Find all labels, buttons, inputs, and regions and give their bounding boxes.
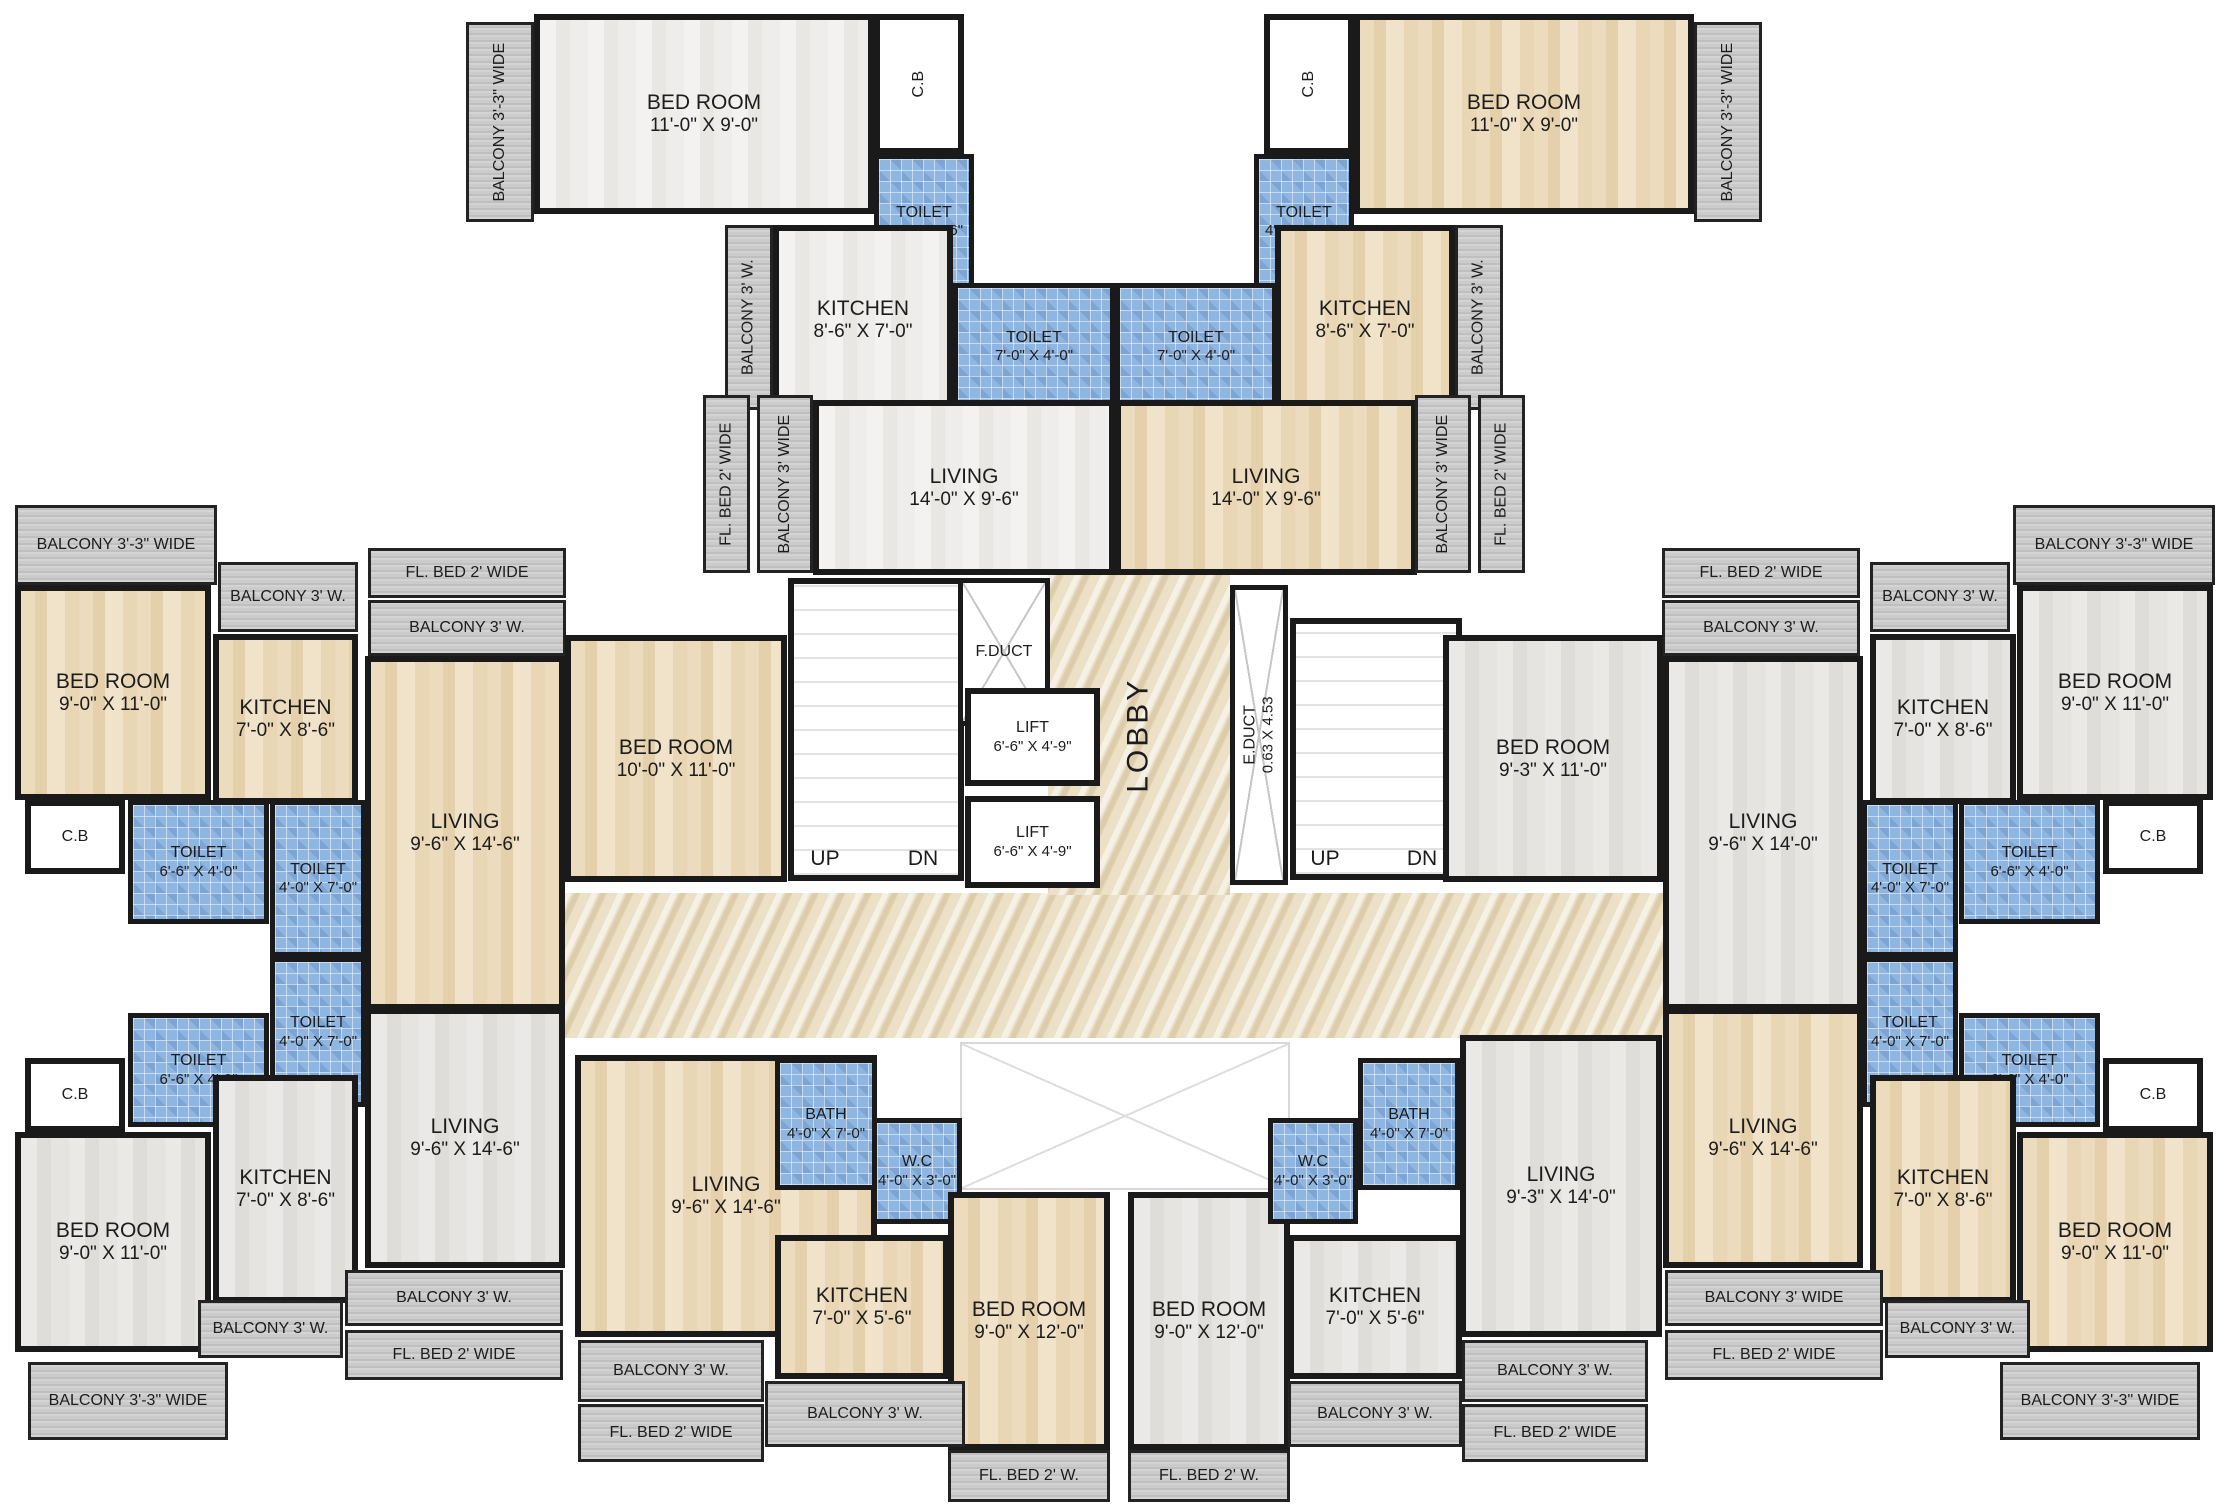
- balcony-3w-left-top-name-text: BALCONY 3' W.: [230, 588, 346, 606]
- kitchen-bot-left-label: KITCHEN7'-0" X 5'-6": [813, 1284, 912, 1330]
- bath-bot-right-name-text: BATH: [1370, 1106, 1448, 1124]
- living-bot-left-label: LIVING9'-6" X 14'-6": [671, 1173, 780, 1219]
- bedroom-left-top-label: BED ROOM9'-0" X 11'-0": [56, 670, 170, 716]
- floor-plan: LOBBYF.DUCTE.DUCT0.63 X 4.53LIFT6'-6" X …: [0, 0, 2229, 1509]
- balcony-33-top-right-name-text: BALCONY 3'-3" WIDE: [1719, 43, 1737, 202]
- bedroom-93-right-mid-label: BED ROOM9'-3" X 11'-0": [1496, 736, 1610, 782]
- cb-top-left-label: C.B: [910, 71, 928, 98]
- balcony-3w-left-bot-2-label: BALCONY 3' W.: [213, 1320, 329, 1338]
- cb-top-right: C.B: [1264, 14, 1354, 154]
- toilet-74-top-right-dims-text: 7'-0" X 4'-0": [1157, 347, 1235, 364]
- stairs-up-right-label: UP: [1310, 847, 1339, 871]
- toilet-66-right-top: TOILET6'-6" X 4'-0": [1959, 800, 2100, 924]
- kitchen-top-left-dims-text: 8'-6" X 7'-0": [814, 321, 913, 343]
- flbed-right-bot: FL. BED 2' WIDE: [1665, 1330, 1883, 1380]
- living-top-left: LIVING14'-0" X 9'-6": [813, 400, 1115, 575]
- flbed-right-bot-name-text: FL. BED 2' WIDE: [1712, 1346, 1835, 1364]
- living-bot-right-dims-text: 9'-3" X 14'-0": [1506, 1187, 1615, 1209]
- cb-left-bot-name-text: C.B: [62, 1086, 89, 1104]
- cb-left-top: C.B: [25, 800, 125, 874]
- kitchen-bot-left-dims-text: 7'-0" X 5'-6": [813, 1308, 912, 1330]
- bedroom-left-bot-name-text: BED ROOM: [56, 1219, 170, 1243]
- balcony-3wide-right-bot: BALCONY 3' WIDE: [1665, 1270, 1883, 1326]
- toilet-66-right-top-label: TOILET6'-6" X 4'-0": [1990, 844, 2068, 880]
- bedroom-12-bot-left-label: BED ROOM9'-0" X 12'-0": [972, 1298, 1086, 1344]
- balcony-33-left-top-label: BALCONY 3'-3" WIDE: [37, 536, 196, 554]
- cb-left-bot-label: C.B: [62, 1086, 89, 1104]
- balcony-3w-right-bot-2-label: BALCONY 3' W.: [1900, 1320, 2016, 1338]
- balcony-33-left-bot-name-text: BALCONY 3'-3" WIDE: [49, 1392, 208, 1410]
- kitchen-bot-left-name-text: KITCHEN: [813, 1284, 912, 1308]
- bedroom-10x11-left-mid-name-text: BED ROOM: [617, 736, 736, 760]
- bedroom-top-left-dims-text: 11'-0" X 9'-0": [647, 115, 761, 137]
- kitchen-left-bot-dims-text: 7'-0" X 8'-6": [236, 1190, 335, 1212]
- flbed-right-top-name-text: FL. BED 2' WIDE: [1699, 564, 1822, 582]
- living-left-bot-name-text: LIVING: [410, 1115, 519, 1139]
- balcony-3w-top-right-name-text: BALCONY 3' W.: [1470, 260, 1488, 376]
- bedroom-93-right-mid-name-text: BED ROOM: [1496, 736, 1610, 760]
- balcony-3w-bot-center-left-label: BALCONY 3' W.: [807, 1405, 923, 1423]
- living-right-bot-name-text: LIVING: [1708, 1115, 1817, 1139]
- flbed-bot-center-right: FL. BED 2' W.: [1128, 1450, 1290, 1502]
- balcony-3w-left-top-2: BALCONY 3' W.: [368, 600, 566, 656]
- bedroom-right-top-dims-text: 9'-0" X 11'-0": [2058, 694, 2172, 716]
- wc-bot-right-dims-text: 4'-0" X 3'-0": [1274, 1172, 1352, 1189]
- bath-bot-right: BATH4'-0" X 7'-0": [1358, 1058, 1460, 1190]
- living-bot-left-dims-text: 9'-6" X 14'-6": [671, 1197, 780, 1219]
- kitchen-top-left-label: KITCHEN8'-6" X 7'-0": [814, 297, 913, 343]
- stairs-up-right: UP: [1295, 842, 1355, 876]
- balcony-3w-bot-left-name-text: BALCONY 3' W.: [613, 1362, 729, 1380]
- living-left-mid-label: LIVING9'-6" X 14'-6": [410, 810, 519, 856]
- kitchen-right-top: KITCHEN7'-0" X 8'-6": [1870, 634, 2016, 804]
- balcony-3w-bot-left-label: BALCONY 3' W.: [613, 1362, 729, 1380]
- bedroom-left-top-dims-text: 9'-0" X 11'-0": [56, 694, 170, 716]
- kitchen-top-left: KITCHEN8'-6" X 7'-0": [773, 225, 953, 415]
- kitchen-left-bot: KITCHEN7'-0" X 8'-6": [213, 1075, 358, 1303]
- balcony-33-left-bot-label: BALCONY 3'-3" WIDE: [49, 1392, 208, 1410]
- living-bot-left-name-text: LIVING: [671, 1173, 780, 1197]
- flbed-left-top-name-text: FL. BED 2' WIDE: [405, 564, 528, 582]
- bath-bot-left-label: BATH4'-0" X 7'-0": [787, 1106, 865, 1142]
- cb-left-top-label: C.B: [62, 828, 89, 846]
- flbed-top-right-name-text: FL. BED 2' WIDE: [1492, 422, 1510, 545]
- kitchen-left-top-label: KITCHEN7'-0" X 8'-6": [236, 696, 335, 742]
- balcony-33-left-bot: BALCONY 3'-3" WIDE: [28, 1362, 228, 1440]
- kitchen-right-bot-name-text: KITCHEN: [1894, 1166, 1993, 1190]
- living-right-mid: LIVING9'-6" X 14'-0": [1663, 656, 1863, 1010]
- flbed-bot-center-left-name-text: FL. BED 2' W.: [979, 1467, 1079, 1485]
- balcony-3wide-right-bot-name-text: BALCONY 3' WIDE: [1705, 1289, 1844, 1307]
- flbed-bot-left-label: FL. BED 2' WIDE: [609, 1424, 732, 1442]
- kitchen-top-left-name-text: KITCHEN: [814, 297, 913, 321]
- balcony-3w-top-left-label: BALCONY 3' W.: [740, 260, 758, 376]
- kitchen-left-top-name-text: KITCHEN: [236, 696, 335, 720]
- living-bot-right-label: LIVING9'-3" X 14'-0": [1506, 1163, 1615, 1209]
- bedroom-93-right-mid: BED ROOM9'-3" X 11'-0": [1443, 635, 1663, 882]
- balcony-3wide-right-bot-label: BALCONY 3' WIDE: [1705, 1289, 1844, 1307]
- living-left-bot: LIVING9'-6" X 14'-6": [365, 1008, 565, 1268]
- kitchen-right-bot-label: KITCHEN7'-0" X 8'-6": [1894, 1166, 1993, 1212]
- kitchen-top-right-dims-text: 8'-6" X 7'-0": [1316, 321, 1415, 343]
- balcony-33-right-bot: BALCONY 3'-3" WIDE: [2000, 1362, 2200, 1440]
- e-duct-dims-text: 0.63 X 4.53: [1260, 697, 1277, 774]
- lift-2-dims-text: 6'-6" X 4'-9": [993, 843, 1071, 860]
- bath-bot-right-label: BATH4'-0" X 7'-0": [1370, 1106, 1448, 1142]
- bedroom-right-bot-dims-text: 9'-0" X 11'-0": [2058, 1243, 2172, 1265]
- balcony-3w-right-bot-2-name-text: BALCONY 3' W.: [1900, 1320, 2016, 1338]
- kitchen-right-top-label: KITCHEN7'-0" X 8'-6": [1894, 696, 1993, 742]
- kitchen-left-top: KITCHEN7'-0" X 8'-6": [213, 634, 358, 804]
- flbed-bot-right-name-text: FL. BED 2' WIDE: [1493, 1424, 1616, 1442]
- cb-top-left-name-text: C.B: [910, 71, 928, 98]
- balcony-3w-right-bot-2: BALCONY 3' W.: [1885, 1300, 2030, 1358]
- balcony-33-right-top-name-text: BALCONY 3'-3" WIDE: [2035, 536, 2194, 554]
- bath-bot-left-name-text: BATH: [787, 1106, 865, 1124]
- bedroom-left-bot: BED ROOM9'-0" X 11'-0": [15, 1132, 211, 1352]
- toilet-47-left-top-label: TOILET4'-0" X 7'-0": [279, 861, 357, 897]
- bedroom-right-top: BED ROOM9'-0" X 11'-0": [2017, 585, 2213, 800]
- balcony-3wide-top-right-name-text: BALCONY 3' WIDE: [1434, 415, 1452, 554]
- balcony-33-top-right: BALCONY 3'-3" WIDE: [1694, 22, 1762, 222]
- bedroom-left-top: BED ROOM9'-0" X 11'-0": [15, 585, 211, 800]
- cb-right-bot-label: C.B: [2140, 1086, 2167, 1104]
- living-right-mid-label: LIVING9'-6" X 14'-0": [1708, 810, 1817, 856]
- balcony-3wide-top-right: BALCONY 3' WIDE: [1415, 395, 1471, 573]
- bedroom-left-bot-label: BED ROOM9'-0" X 11'-0": [56, 1219, 170, 1265]
- bath-bot-left: BATH4'-0" X 7'-0": [775, 1058, 877, 1190]
- kitchen-bot-left: KITCHEN7'-0" X 5'-6": [775, 1235, 949, 1379]
- bedroom-top-left-name-text: BED ROOM: [647, 91, 761, 115]
- cb-right-top-name-text: C.B: [2140, 828, 2167, 846]
- bedroom-top-right-dims-text: 11'-0" X 9'-0": [1467, 115, 1581, 137]
- bath-bot-left-dims-text: 4'-0" X 7'-0": [787, 1125, 865, 1142]
- stairs-up-right-name-text: UP: [1310, 847, 1339, 871]
- bedroom-top-right: BED ROOM11'-0" X 9'-0": [1354, 14, 1694, 214]
- cb-top-right-label: C.B: [1300, 71, 1318, 98]
- flbed-bot-left-name-text: FL. BED 2' WIDE: [609, 1424, 732, 1442]
- toilet-47-right-bot-dims-text: 4'-0" X 7'-0": [1871, 1033, 1949, 1050]
- wc-bot-left-name-text: W.C: [878, 1153, 956, 1171]
- f-duct-name-text: F.DUCT: [976, 643, 1033, 661]
- flbed-top-left-name-text: FL. BED 2' WIDE: [717, 422, 735, 545]
- toilet-74-top-left-dims-text: 7'-0" X 4'-0": [995, 347, 1073, 364]
- bedroom-12-bot-right-label: BED ROOM9'-0" X 12'-0": [1152, 1298, 1266, 1344]
- stairs-dn-right-name-text: DN: [1407, 847, 1437, 871]
- kitchen-bot-right-dims-text: 7'-0" X 5'-6": [1326, 1308, 1425, 1330]
- balcony-3w-right-top-name-text: BALCONY 3' W.: [1882, 588, 1998, 606]
- toilet-74-top-right: TOILET7'-0" X 4'-0": [1115, 283, 1277, 410]
- kitchen-right-bot-dims-text: 7'-0" X 8'-6": [1894, 1190, 1993, 1212]
- balcony-3w-bot-right: BALCONY 3' W.: [1462, 1340, 1648, 1402]
- lobby-label: LOBBY: [1122, 677, 1157, 792]
- balcony-33-left-top: BALCONY 3'-3" WIDE: [15, 505, 217, 585]
- balcony-3wide-left-bot: BALCONY 3' W.: [345, 1270, 563, 1326]
- toilet-46-top-left-name-text: TOILET: [885, 204, 963, 222]
- flbed-left-bot-label: FL. BED 2' WIDE: [392, 1346, 515, 1364]
- toilet-74-top-left-label: TOILET7'-0" X 4'-0": [995, 329, 1073, 365]
- bedroom-right-top-label: BED ROOM9'-0" X 11'-0": [2058, 670, 2172, 716]
- balcony-3w-left-bot-2: BALCONY 3' W.: [198, 1300, 343, 1358]
- bedroom-10x11-left-mid-label: BED ROOM10'-0" X 11'-0": [617, 736, 736, 782]
- flbed-right-bot-label: FL. BED 2' WIDE: [1712, 1346, 1835, 1364]
- flbed-bot-center-right-label: FL. BED 2' W.: [1159, 1467, 1259, 1485]
- living-top-left-dims-text: 14'-0" X 9'-6": [909, 489, 1018, 511]
- toilet-66-right-bot-name-text: TOILET: [1990, 1052, 2068, 1070]
- bedroom-top-left-label: BED ROOM11'-0" X 9'-0": [647, 91, 761, 137]
- balcony-3wide-left-bot-name-text: BALCONY 3' W.: [396, 1289, 512, 1307]
- balcony-3w-left-bot-2-name-text: BALCONY 3' W.: [213, 1320, 329, 1338]
- balcony-3w-right-top-2-name-text: BALCONY 3' W.: [1703, 619, 1819, 637]
- toilet-47-right-top-label: TOILET4'-0" X 7'-0": [1871, 861, 1949, 897]
- balcony-3wide-top-left-name-text: BALCONY 3' WIDE: [776, 415, 794, 554]
- balcony-3w-bot-center-right: BALCONY 3' W.: [1288, 1381, 1462, 1447]
- cb-left-bot: C.B: [25, 1058, 125, 1132]
- living-top-right-name-text: LIVING: [1211, 465, 1320, 489]
- bath-bot-right-dims-text: 4'-0" X 7'-0": [1370, 1125, 1448, 1142]
- balcony-3w-bot-left: BALCONY 3' W.: [578, 1340, 764, 1402]
- balcony-3w-left-top: BALCONY 3' W.: [218, 562, 358, 632]
- lift-2-label: LIFT6'-6" X 4'-9": [993, 824, 1071, 860]
- e-duct-label: E.DUCT0.63 X 4.53: [1241, 697, 1277, 774]
- balcony-33-top-left: BALCONY 3'-3" WIDE: [466, 22, 534, 222]
- stairs-dn-left-name-text: DN: [908, 847, 938, 871]
- lift-1: LIFT6'-6" X 4'-9": [965, 688, 1100, 786]
- living-right-mid-dims-text: 9'-6" X 14'-0": [1708, 834, 1817, 856]
- kitchen-right-top-name-text: KITCHEN: [1894, 696, 1993, 720]
- flbed-bot-center-right-name-text: FL. BED 2' W.: [1159, 1467, 1259, 1485]
- toilet-66-left-top-label: TOILET6'-6" X 4'-0": [159, 844, 237, 880]
- balcony-3w-left-top-label: BALCONY 3' W.: [230, 588, 346, 606]
- lift-2: LIFT6'-6" X 4'-9": [965, 796, 1100, 888]
- bedroom-12-bot-right-dims-text: 9'-0" X 12'-0": [1152, 1322, 1266, 1344]
- living-right-bot: LIVING9'-6" X 14'-6": [1663, 1008, 1863, 1268]
- balcony-3w-left-top-2-name-text: BALCONY 3' W.: [409, 619, 525, 637]
- cb-left-top-name-text: C.B: [62, 828, 89, 846]
- bedroom-10x11-left-mid-dims-text: 10'-0" X 11'-0": [617, 760, 736, 782]
- balcony-3w-left-top-2-label: BALCONY 3' W.: [409, 619, 525, 637]
- toilet-66-left-bot-name-text: TOILET: [159, 1052, 237, 1070]
- flbed-left-top-label: FL. BED 2' WIDE: [405, 564, 528, 582]
- stairs-up-left-name-text: UP: [810, 847, 839, 871]
- toilet-66-left-top: TOILET6'-6" X 4'-0": [128, 800, 269, 924]
- bedroom-right-bot-label: BED ROOM9'-0" X 11'-0": [2058, 1219, 2172, 1265]
- lift-1-name-text: LIFT: [993, 719, 1071, 737]
- toilet-47-left-bot-dims-text: 4'-0" X 7'-0": [279, 1033, 357, 1050]
- staircase-left: [788, 578, 964, 881]
- bedroom-right-bot-name-text: BED ROOM: [2058, 1219, 2172, 1243]
- bedroom-top-left: BED ROOM11'-0" X 9'-0": [534, 14, 874, 214]
- lift-1-label: LIFT6'-6" X 4'-9": [993, 719, 1071, 755]
- balcony-3wide-left-bot-label: BALCONY 3' W.: [396, 1289, 512, 1307]
- balcony-3w-bot-center-left: BALCONY 3' W.: [765, 1381, 965, 1447]
- stairs-up-left-label: UP: [810, 847, 839, 871]
- e-duct: E.DUCT0.63 X 4.53: [1230, 585, 1288, 885]
- flbed-top-right-label: FL. BED 2' WIDE: [1492, 422, 1510, 545]
- bedroom-12-bot-left-dims-text: 9'-0" X 12'-0": [972, 1322, 1086, 1344]
- cb-right-bot: C.B: [2103, 1058, 2203, 1132]
- living-left-mid: LIVING9'-6" X 14'-6": [365, 656, 565, 1010]
- living-top-right: LIVING14'-0" X 9'-6": [1115, 400, 1417, 575]
- kitchen-top-right: KITCHEN8'-6" X 7'-0": [1275, 225, 1455, 415]
- flbed-left-bot: FL. BED 2' WIDE: [345, 1330, 563, 1380]
- living-top-left-label: LIVING14'-0" X 9'-6": [909, 465, 1018, 511]
- flbed-bot-center-left: FL. BED 2' W.: [948, 1450, 1110, 1502]
- staircase-right: [1290, 618, 1462, 880]
- flbed-left-top: FL. BED 2' WIDE: [368, 548, 566, 598]
- cb-right-top-label: C.B: [2140, 828, 2167, 846]
- balcony-33-right-top-label: BALCONY 3'-3" WIDE: [2035, 536, 2194, 554]
- bedroom-93-right-mid-dims-text: 9'-3" X 11'-0": [1496, 760, 1610, 782]
- toilet-47-left-bot-label: TOILET4'-0" X 7'-0": [279, 1014, 357, 1050]
- bedroom-right-top-name-text: BED ROOM: [2058, 670, 2172, 694]
- balcony-3w-bot-right-name-text: BALCONY 3' W.: [1497, 1362, 1613, 1380]
- living-left-bot-dims-text: 9'-6" X 14'-6": [410, 1139, 519, 1161]
- wc-bot-left-label: W.C4'-0" X 3'-0": [878, 1153, 956, 1189]
- balcony-3wide-top-right-label: BALCONY 3' WIDE: [1434, 415, 1452, 554]
- kitchen-bot-right-label: KITCHEN7'-0" X 5'-6": [1326, 1284, 1425, 1330]
- cb-right-top: C.B: [2103, 800, 2203, 874]
- balcony-33-left-top-name-text: BALCONY 3'-3" WIDE: [37, 536, 196, 554]
- cb-right-bot-name-text: C.B: [2140, 1086, 2167, 1104]
- toilet-66-left-top-name-text: TOILET: [159, 844, 237, 862]
- toilet-47-left-top-dims-text: 4'-0" X 7'-0": [279, 879, 357, 896]
- toilet-74-top-left-name-text: TOILET: [995, 329, 1073, 347]
- kitchen-top-right-name-text: KITCHEN: [1316, 297, 1415, 321]
- kitchen-top-right-label: KITCHEN8'-6" X 7'-0": [1316, 297, 1415, 343]
- living-bot-right: LIVING9'-3" X 14'-0": [1460, 1035, 1662, 1337]
- stairs-dn-left-label: DN: [908, 847, 938, 871]
- stairs-dn-right-label: DN: [1407, 847, 1437, 871]
- toilet-47-left-bot-name-text: TOILET: [279, 1014, 357, 1032]
- flbed-top-left-label: FL. BED 2' WIDE: [717, 422, 735, 545]
- balcony-3w-top-left-name-text: BALCONY 3' W.: [740, 260, 758, 376]
- toilet-74-top-right-name-text: TOILET: [1157, 329, 1235, 347]
- balcony-3w-right-top-label: BALCONY 3' W.: [1882, 588, 1998, 606]
- balcony-33-right-bot-label: BALCONY 3'-3" WIDE: [2021, 1392, 2180, 1410]
- open-cut: [960, 1042, 1290, 1190]
- flbed-bot-center-left-label: FL. BED 2' W.: [979, 1467, 1079, 1485]
- flbed-right-top-label: FL. BED 2' WIDE: [1699, 564, 1822, 582]
- balcony-33-right-top: BALCONY 3'-3" WIDE: [2013, 505, 2215, 585]
- balcony-3w-right-top-2: BALCONY 3' W.: [1662, 600, 1860, 656]
- toilet-46-top-right-name-text: TOILET: [1265, 204, 1343, 222]
- toilet-47-right-top-dims-text: 4'-0" X 7'-0": [1871, 879, 1949, 896]
- wc-bot-right: W.C4'-0" X 3'-0": [1268, 1118, 1358, 1224]
- kitchen-bot-right-name-text: KITCHEN: [1326, 1284, 1425, 1308]
- kitchen-left-bot-label: KITCHEN7'-0" X 8'-6": [236, 1166, 335, 1212]
- toilet-66-left-top-dims-text: 6'-6" X 4'-0": [159, 863, 237, 880]
- toilet-66-right-top-dims-text: 6'-6" X 4'-0": [1990, 863, 2068, 880]
- toilet-74-top-right-label: TOILET7'-0" X 4'-0": [1157, 329, 1235, 365]
- bedroom-top-right-label: BED ROOM11'-0" X 9'-0": [1467, 91, 1581, 137]
- stairs-up-left: UP: [795, 842, 855, 876]
- balcony-3w-bot-center-right-label: BALCONY 3' W.: [1317, 1405, 1433, 1423]
- bedroom-right-bot: BED ROOM9'-0" X 11'-0": [2017, 1132, 2213, 1352]
- flbed-left-bot-name-text: FL. BED 2' WIDE: [392, 1346, 515, 1364]
- lobby-name-text: LOBBY: [1122, 677, 1157, 792]
- balcony-33-top-left-label: BALCONY 3'-3" WIDE: [491, 43, 509, 202]
- balcony-3w-top-right: BALCONY 3' W.: [1455, 225, 1503, 410]
- flbed-right-top: FL. BED 2' WIDE: [1662, 548, 1860, 598]
- bedroom-left-top-name-text: BED ROOM: [56, 670, 170, 694]
- toilet-74-top-left: TOILET7'-0" X 4'-0": [953, 283, 1115, 410]
- toilet-47-right-bot-name-text: TOILET: [1871, 1014, 1949, 1032]
- wc-bot-left-dims-text: 4'-0" X 3'-0": [878, 1172, 956, 1189]
- balcony-3wide-top-left-label: BALCONY 3' WIDE: [776, 415, 794, 554]
- living-left-bot-label: LIVING9'-6" X 14'-6": [410, 1115, 519, 1161]
- kitchen-right-bot: KITCHEN7'-0" X 8'-6": [1870, 1075, 2016, 1303]
- flbed-bot-right-label: FL. BED 2' WIDE: [1493, 1424, 1616, 1442]
- toilet-47-right-bot-label: TOILET4'-0" X 7'-0": [1871, 1014, 1949, 1050]
- toilet-47-left-top: TOILET4'-0" X 7'-0": [270, 800, 366, 957]
- living-right-bot-dims-text: 9'-6" X 14'-6": [1708, 1139, 1817, 1161]
- flbed-top-right: FL. BED 2' WIDE: [1478, 395, 1525, 573]
- cb-top-right-name-text: C.B: [1300, 71, 1318, 98]
- toilet-47-left-top-name-text: TOILET: [279, 861, 357, 879]
- balcony-33-right-bot-name-text: BALCONY 3'-3" WIDE: [2021, 1392, 2180, 1410]
- balcony-3wide-top-left: BALCONY 3' WIDE: [757, 395, 813, 573]
- cb-top-left: C.B: [874, 14, 964, 154]
- toilet-47-right-top: TOILET4'-0" X 7'-0": [1862, 800, 1958, 957]
- bedroom-12-bot-left-name-text: BED ROOM: [972, 1298, 1086, 1322]
- wc-bot-right-name-text: W.C: [1274, 1153, 1352, 1171]
- kitchen-right-top-dims-text: 7'-0" X 8'-6": [1894, 720, 1993, 742]
- kitchen-left-top-dims-text: 7'-0" X 8'-6": [236, 720, 335, 742]
- living-left-mid-name-text: LIVING: [410, 810, 519, 834]
- balcony-33-top-left-name-text: BALCONY 3'-3" WIDE: [491, 43, 509, 202]
- living-left-mid-dims-text: 9'-6" X 14'-6": [410, 834, 519, 856]
- lobby-corridor: [565, 893, 1665, 1038]
- toilet-47-right-top-name-text: TOILET: [1871, 861, 1949, 879]
- living-top-right-dims-text: 14'-0" X 9'-6": [1211, 489, 1320, 511]
- e-duct-name-text: E.DUCT: [1241, 697, 1259, 774]
- f-duct-label: F.DUCT: [976, 643, 1033, 661]
- balcony-3w-top-right-label: BALCONY 3' W.: [1470, 260, 1488, 376]
- living-right-bot-label: LIVING9'-6" X 14'-6": [1708, 1115, 1817, 1161]
- bedroom-10x11-left-mid: BED ROOM10'-0" X 11'-0": [565, 635, 787, 882]
- living-top-left-name-text: LIVING: [909, 465, 1018, 489]
- flbed-bot-right: FL. BED 2' WIDE: [1462, 1404, 1648, 1462]
- living-top-right-label: LIVING14'-0" X 9'-6": [1211, 465, 1320, 511]
- toilet-66-right-top-name-text: TOILET: [1990, 844, 2068, 862]
- bedroom-12-bot-right-name-text: BED ROOM: [1152, 1298, 1266, 1322]
- living-right-mid-name-text: LIVING: [1708, 810, 1817, 834]
- bedroom-left-bot-dims-text: 9'-0" X 11'-0": [56, 1243, 170, 1265]
- balcony-3w-bot-center-left-name-text: BALCONY 3' W.: [807, 1405, 923, 1423]
- living-bot-right-name-text: LIVING: [1506, 1163, 1615, 1187]
- balcony-3w-right-top: BALCONY 3' W.: [1870, 562, 2010, 632]
- flbed-bot-left: FL. BED 2' WIDE: [578, 1404, 764, 1462]
- balcony-3w-bot-right-label: BALCONY 3' W.: [1497, 1362, 1613, 1380]
- bedroom-12-bot-right: BED ROOM9'-0" X 12'-0": [1128, 1192, 1290, 1450]
- wc-bot-right-label: W.C4'-0" X 3'-0": [1274, 1153, 1352, 1189]
- stairs-dn-right: DN: [1392, 842, 1452, 876]
- lift-2-name-text: LIFT: [993, 824, 1071, 842]
- balcony-33-top-right-label: BALCONY 3'-3" WIDE: [1719, 43, 1737, 202]
- bedroom-12-bot-left: BED ROOM9'-0" X 12'-0": [948, 1192, 1110, 1450]
- balcony-3w-top-left: BALCONY 3' W.: [725, 225, 773, 410]
- bedroom-top-right-name-text: BED ROOM: [1467, 91, 1581, 115]
- balcony-3w-bot-center-right-name-text: BALCONY 3' W.: [1317, 1405, 1433, 1423]
- balcony-3w-right-top-2-label: BALCONY 3' W.: [1703, 619, 1819, 637]
- kitchen-bot-right: KITCHEN7'-0" X 5'-6": [1288, 1235, 1462, 1379]
- lift-1-dims-text: 6'-6" X 4'-9": [993, 738, 1071, 755]
- kitchen-left-bot-name-text: KITCHEN: [236, 1166, 335, 1190]
- flbed-top-left: FL. BED 2' WIDE: [703, 395, 750, 573]
- stairs-dn-left: DN: [893, 842, 953, 876]
